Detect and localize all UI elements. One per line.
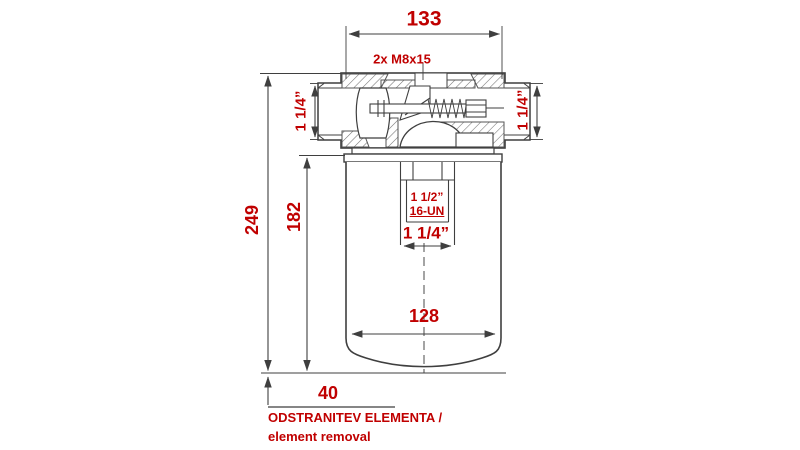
port-left-label: 1 1/4”: [294, 91, 309, 132]
dim-133-label: 133: [406, 9, 441, 30]
bolt-spec-label: 2x M8x15: [373, 53, 431, 66]
thread-size-label: 1 1/2”: [411, 191, 444, 203]
dim-249-label: 249: [243, 205, 261, 235]
dim-182-label: 182: [285, 202, 303, 232]
center-port-label: 1 1/4”: [403, 225, 449, 242]
port-right-label: 1 1/4”: [516, 90, 531, 131]
removal-note-en: element removal: [268, 430, 371, 443]
dim-40-label: 40: [318, 384, 338, 402]
left-port: [318, 83, 342, 140]
dim-128-label: 128: [409, 307, 439, 325]
filter-technical-drawing: [0, 0, 800, 450]
head-flange: [344, 148, 502, 162]
drawing-canvas: 133 2x M8x15 249 182 1 1/4” 1 1/4” 1 1/2…: [0, 0, 800, 450]
thread-class-label: 16-UN: [410, 205, 445, 217]
filter-head-section: [318, 73, 530, 148]
removal-note-sl: ODSTRANITEV ELEMENTA /: [268, 411, 442, 424]
head-insert: [456, 133, 493, 147]
